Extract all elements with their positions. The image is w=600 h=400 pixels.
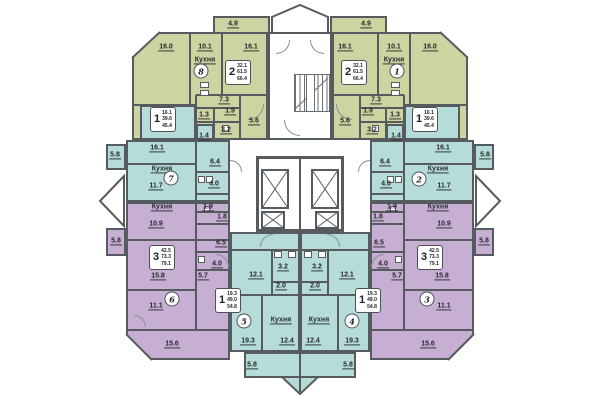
- apartment-data-plate: 116.139.645.4: [412, 107, 438, 132]
- apartment-number-badge: 3: [420, 292, 435, 307]
- room-area-label: 11.1: [436, 302, 451, 310]
- room-area-label: 16.0: [158, 43, 174, 51]
- text-layer: 16.010.1Кухня16.14.97.31.31.93.25.61.416…: [0, 0, 600, 400]
- room-area-label: 5.7: [391, 272, 403, 280]
- area-figures: 16.139.645.4: [424, 110, 434, 129]
- apartment-data-plate: 232.161.566.4: [225, 60, 251, 85]
- apartment-number-badge: 2: [412, 172, 427, 187]
- room-area-label: 1.9: [224, 107, 236, 115]
- apartment-data-plate: 342.573.379.1: [149, 245, 175, 270]
- room-area-label: 4.0: [380, 180, 392, 188]
- room-area-label: 1.8: [216, 213, 228, 221]
- room-count: 3: [153, 251, 159, 263]
- apartment-number-badge: 7: [164, 171, 179, 186]
- room-area-label: 12.1: [248, 271, 264, 279]
- room-area-label: 1.8: [372, 213, 384, 221]
- kitchen-label: Кухня: [308, 316, 330, 324]
- room-area-label: 1.3: [389, 111, 401, 119]
- room-area-label: 10.1: [386, 43, 402, 51]
- room-count: 1: [219, 294, 225, 306]
- room-area-label: 4.0: [208, 180, 220, 188]
- room-area-label: 3.2: [220, 126, 232, 134]
- room-area-label: 1.3: [198, 111, 210, 119]
- kitchen-label: Кухня: [427, 165, 449, 173]
- room-area-label: 1.4: [390, 132, 402, 140]
- room-area-label: 6.4: [379, 158, 391, 166]
- room-area-label: 4.9: [360, 20, 372, 28]
- room-area-label: 7.3: [218, 96, 230, 104]
- area-figures: 42.573.379.1: [161, 248, 171, 267]
- room-count: 1: [416, 113, 422, 125]
- room-area-label: 19.3: [344, 337, 360, 345]
- room-area-label: 5.8: [109, 151, 121, 159]
- room-area-label: 5.6: [248, 117, 260, 125]
- room-area-label: 16.1: [149, 144, 165, 152]
- room-area-label: 6.5: [215, 239, 227, 247]
- room-area-label: 16.1: [243, 43, 259, 51]
- kitchen-label: Кухня: [151, 203, 173, 211]
- room-area-label: 4.0: [211, 260, 223, 268]
- apartment-number-badge: 5: [237, 314, 252, 329]
- floor-plan: 16.010.1Кухня16.14.97.31.31.93.25.61.416…: [0, 0, 600, 400]
- room-count: 3: [421, 251, 427, 263]
- apartment-number-badge: 8: [194, 64, 209, 79]
- area-figures: 16.139.645.4: [162, 110, 172, 129]
- room-area-label: 10.9: [436, 220, 452, 228]
- room-count: 1: [154, 113, 160, 125]
- area-figures: 32.161.566.4: [237, 63, 247, 82]
- apartment-data-plate: 342.573.379.1: [417, 245, 443, 270]
- room-area-label: 15.6: [420, 340, 436, 348]
- room-area-label: 10.1: [197, 43, 213, 51]
- room-area-label: 3.2: [277, 263, 289, 271]
- room-area-label: 1.9: [362, 107, 374, 115]
- room-count: 2: [345, 66, 351, 78]
- room-area-label: 11.7: [148, 182, 163, 190]
- apartment-number-badge: 4: [345, 314, 360, 329]
- room-area-label: 1.4: [198, 132, 210, 140]
- room-area-label: 5.8: [110, 237, 122, 245]
- apartment-data-plate: 116.139.645.4: [150, 107, 176, 132]
- room-area-label: 12.1: [339, 271, 355, 279]
- room-area-label: 12.4: [305, 337, 321, 345]
- room-area-label: 16.1: [435, 144, 451, 152]
- room-area-label: 7.3: [370, 96, 382, 104]
- apartment-number-badge: 6: [165, 292, 180, 307]
- kitchen-label: Кухня: [427, 203, 449, 211]
- room-area-label: 1.9: [386, 203, 398, 211]
- room-area-label: 4.0: [377, 260, 389, 268]
- apartment-data-plate: 232.161.566.4: [341, 60, 367, 85]
- room-area-label: 16.1: [337, 43, 353, 51]
- apartment-data-plate: 119.349.054.8: [215, 288, 241, 313]
- area-figures: 42.573.379.1: [429, 248, 439, 267]
- room-area-label: 6.4: [209, 158, 221, 166]
- kitchen-label: Кухня: [270, 316, 292, 324]
- room-area-label: 6.5: [373, 239, 385, 247]
- apartment-data-plate: 119.349.054.8: [355, 288, 381, 313]
- room-area-label: 5.8: [246, 361, 258, 369]
- room-area-label: 4.9: [227, 20, 239, 28]
- room-area-label: 3.2: [311, 263, 323, 271]
- room-area-label: 12.4: [279, 337, 295, 345]
- room-area-label: 15.6: [164, 340, 180, 348]
- room-area-label: 3.2: [366, 126, 378, 134]
- room-area-label: 5.8: [342, 361, 354, 369]
- room-area-label: 5.8: [478, 237, 490, 245]
- room-area-label: 15.8: [150, 272, 166, 280]
- room-area-label: 5.6: [339, 117, 351, 125]
- room-count: 1: [359, 294, 365, 306]
- room-area-label: 5.8: [479, 151, 491, 159]
- area-figures: 32.161.566.4: [353, 63, 363, 82]
- area-figures: 19.349.054.8: [367, 291, 377, 310]
- room-area-label: 2.0: [309, 282, 321, 290]
- room-count: 2: [229, 66, 235, 78]
- room-area-label: 5.7: [197, 272, 209, 280]
- area-figures: 19.349.054.8: [227, 291, 237, 310]
- room-area-label: 1.9: [202, 203, 214, 211]
- room-area-label: 11.1: [148, 302, 163, 310]
- room-area-label: 10.9: [148, 220, 164, 228]
- room-area-label: 11.7: [436, 182, 451, 190]
- room-area-label: 15.8: [434, 272, 450, 280]
- room-area-label: 16.0: [422, 43, 438, 51]
- room-area-label: 19.3: [240, 337, 256, 345]
- room-area-label: 2.0: [275, 282, 287, 290]
- apartment-number-badge: 1: [390, 64, 405, 79]
